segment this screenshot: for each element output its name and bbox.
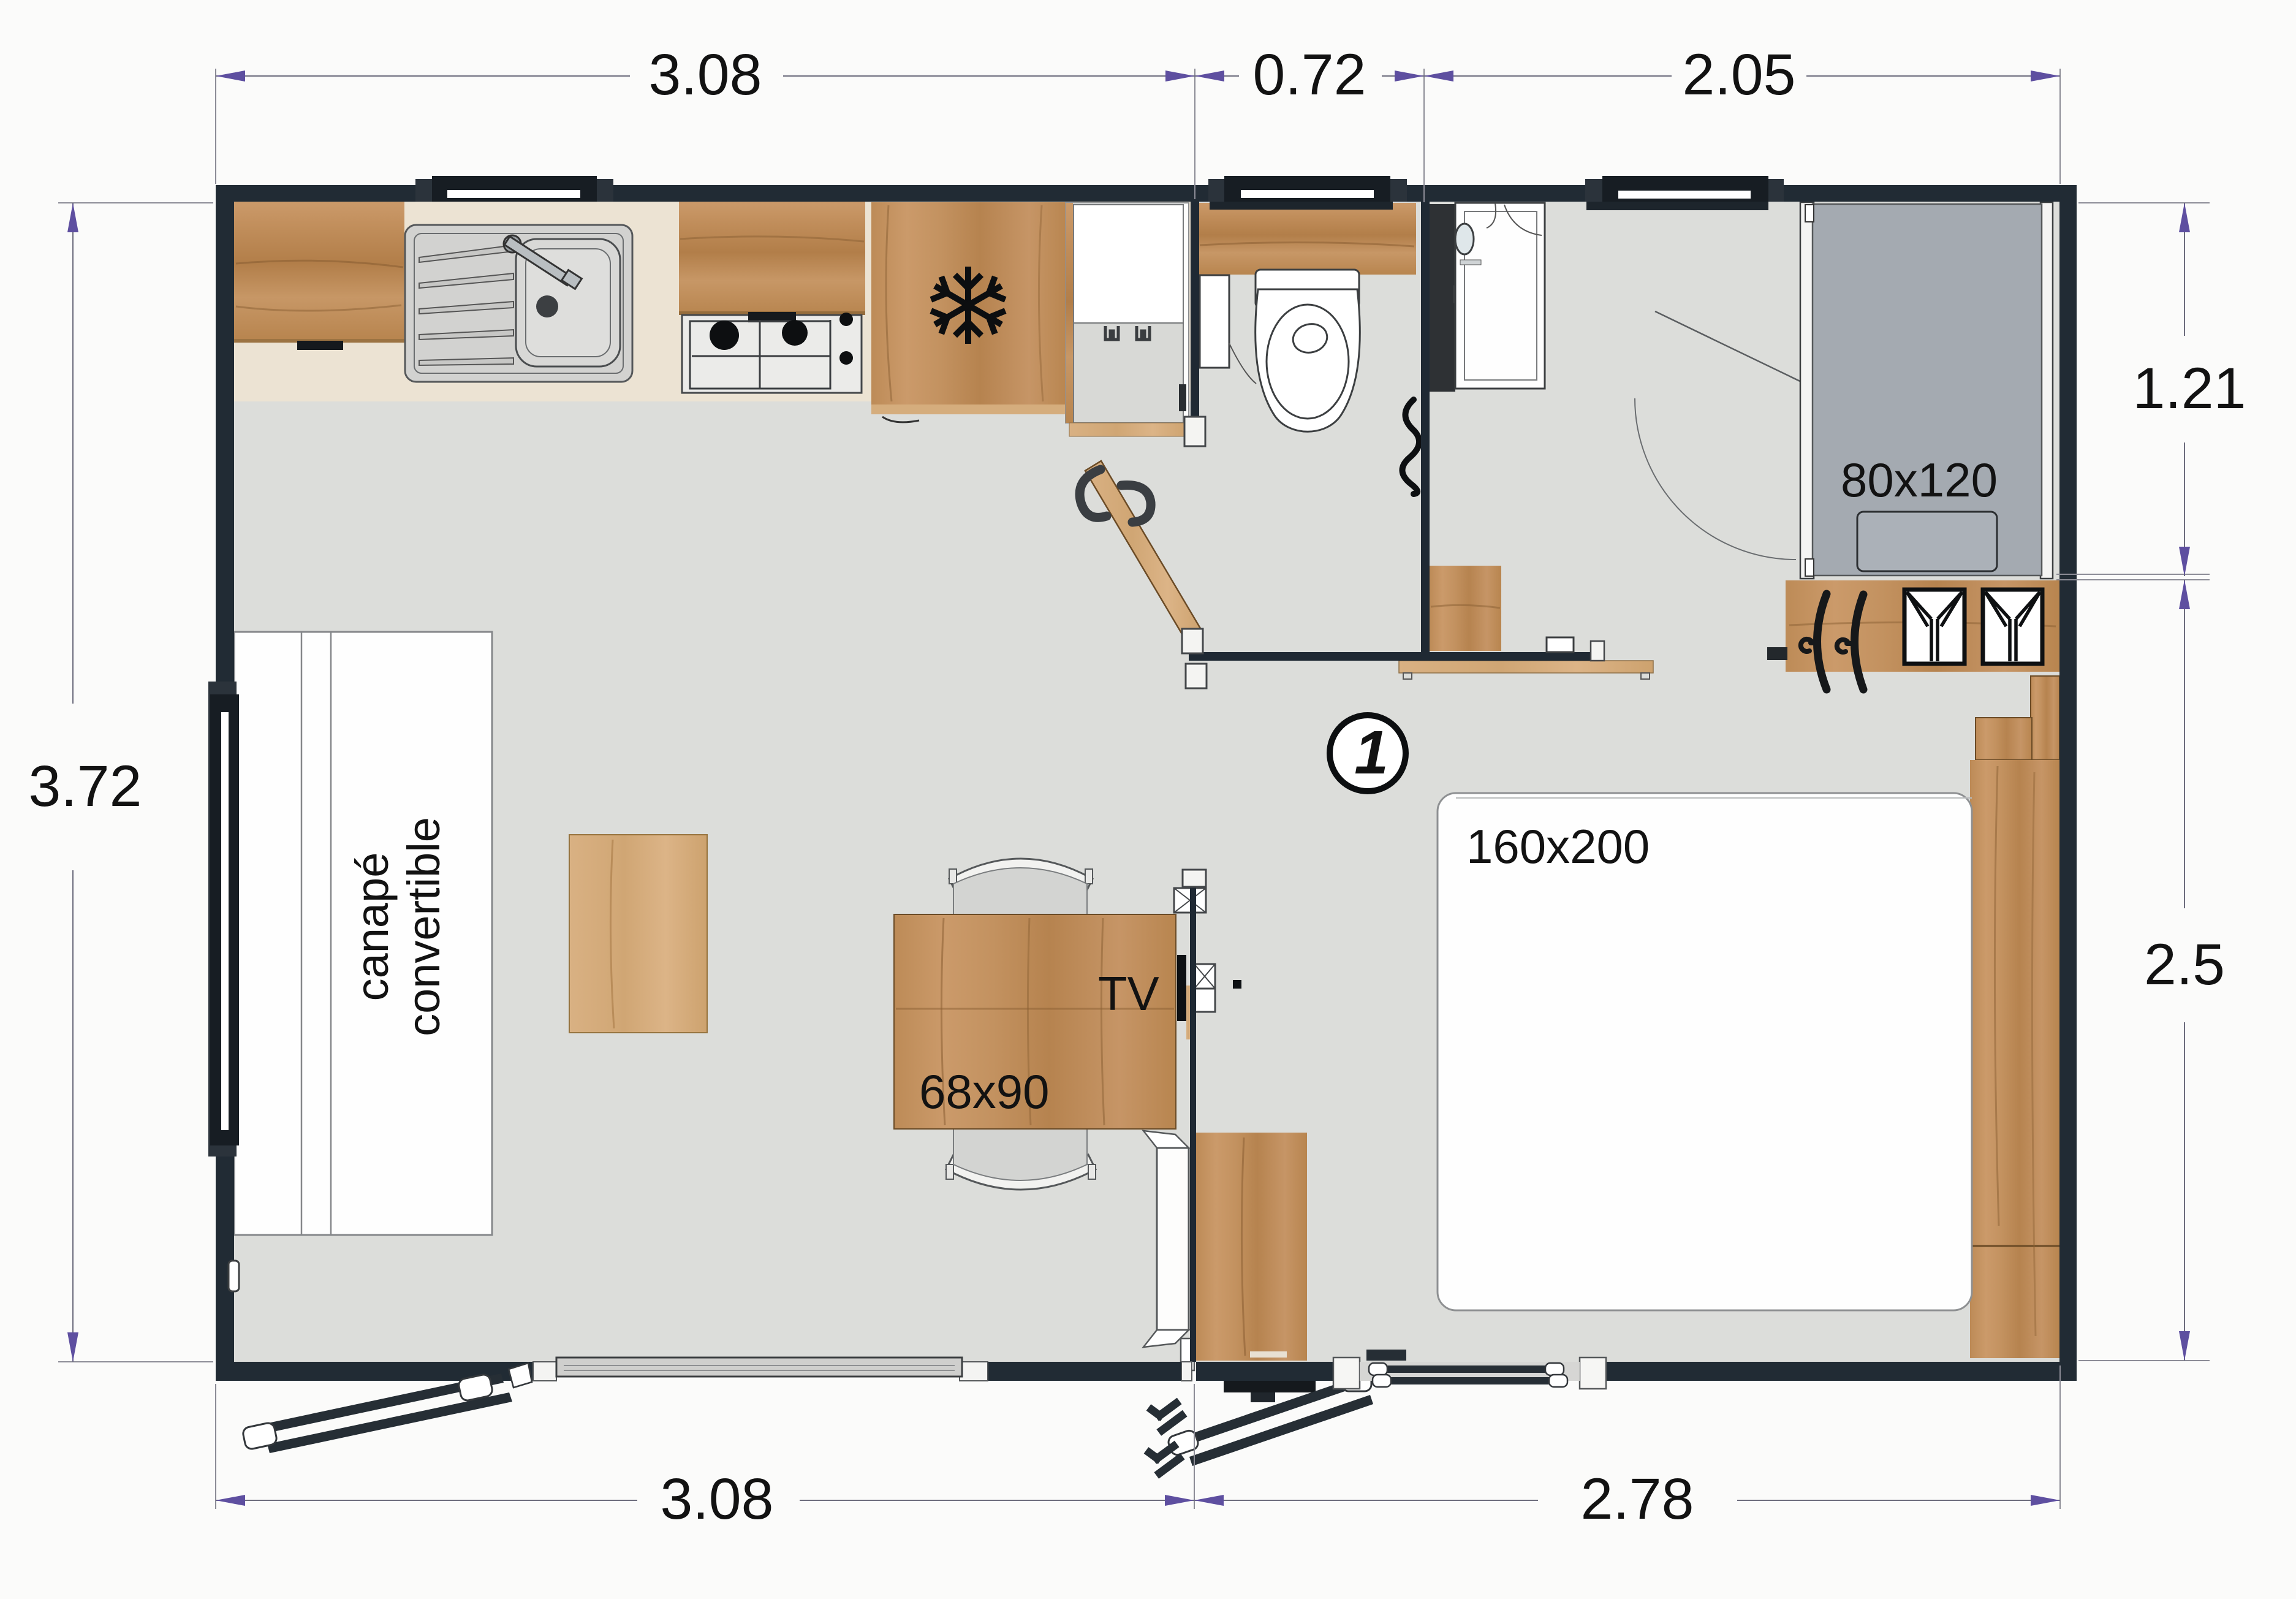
svg-text:1: 1 [1354,718,1389,787]
svg-text:80x120: 80x120 [1841,453,1998,507]
svg-text:3.72: 3.72 [29,754,142,819]
svg-text:canapé: canapé [347,853,398,1001]
svg-text:TV: TV [1098,967,1159,1020]
svg-text:2.05: 2.05 [1683,42,1796,107]
svg-text:0.72: 0.72 [1253,42,1366,107]
svg-text:2.78: 2.78 [1581,1467,1694,1532]
svg-text:3.08: 3.08 [649,42,762,107]
svg-text:convertible: convertible [398,817,449,1036]
svg-text:1.21: 1.21 [2133,356,2246,421]
svg-text:3.08: 3.08 [661,1467,774,1532]
svg-text:68x90: 68x90 [919,1065,1050,1119]
svg-text:2.5: 2.5 [2144,932,2225,997]
svg-text:160x200: 160x200 [1466,819,1650,873]
